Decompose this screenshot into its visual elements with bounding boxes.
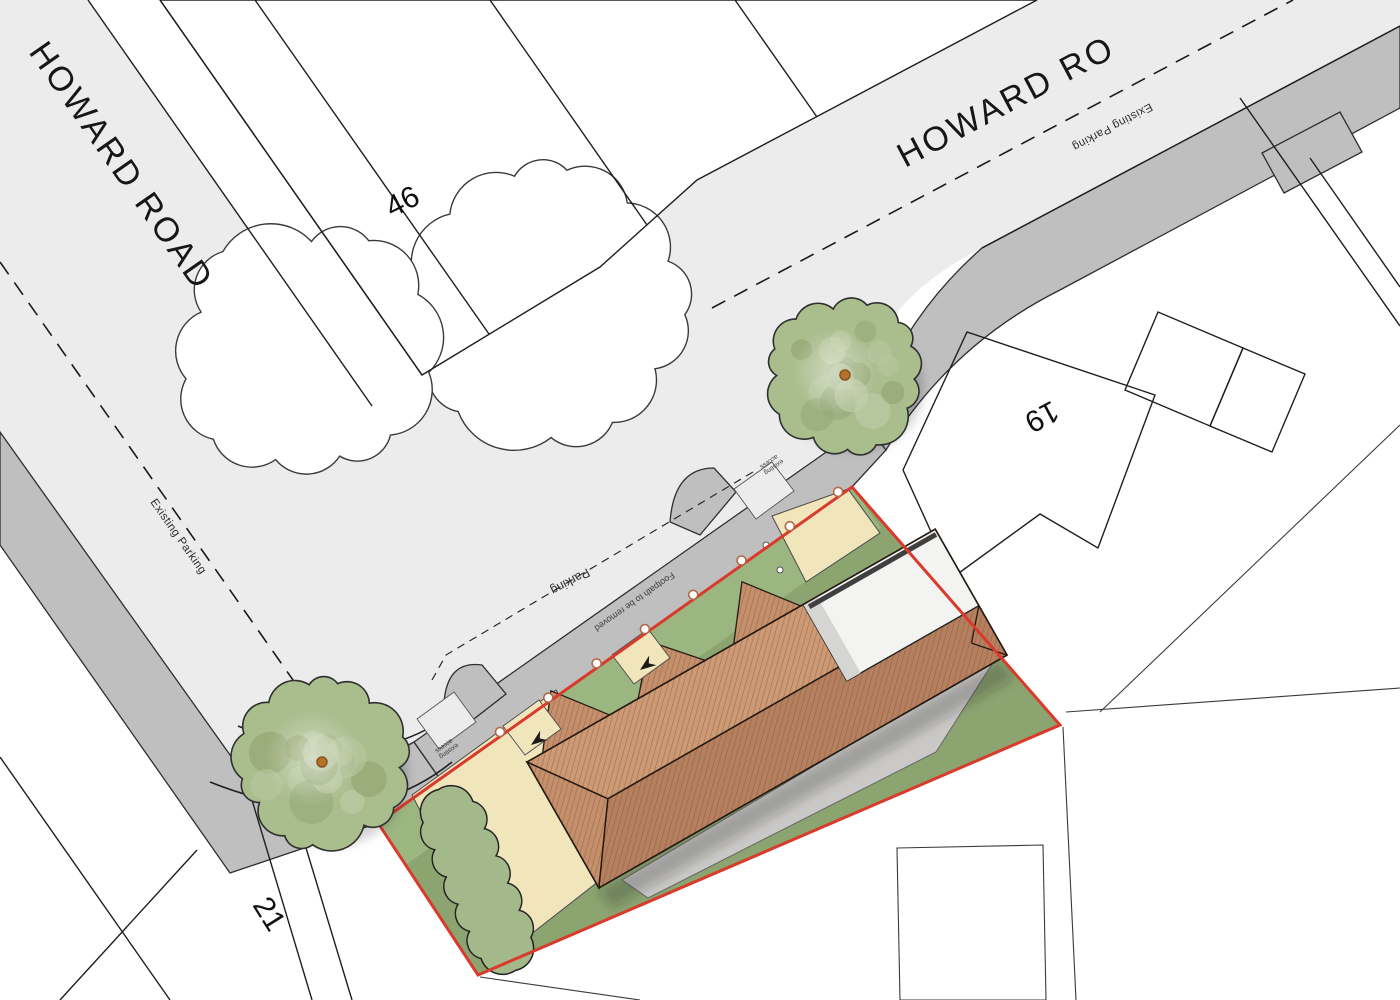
tree <box>768 298 924 455</box>
house-19-garage-b <box>1210 348 1305 452</box>
bollard-marker <box>834 487 843 496</box>
tree-trunk-marker <box>317 757 327 767</box>
bollard-marker <box>737 556 746 565</box>
site-plan-page: HOWARD ROAD HOWARD RO 46 19 21 Existing … <box>0 0 1400 1000</box>
bollard-marker <box>496 728 505 737</box>
bollard-marker <box>640 625 649 634</box>
site-plan-drawing: HOWARD ROAD HOWARD RO 46 19 21 Existing … <box>0 0 1400 1000</box>
shed-outline <box>897 845 1046 1000</box>
bollard-marker <box>592 659 601 668</box>
plot-number-21: 21 <box>246 891 292 937</box>
house-19-garage-a <box>1125 312 1243 426</box>
tree-trunk-marker <box>840 370 850 380</box>
bollard-marker <box>785 522 794 531</box>
bollard-marker <box>689 590 698 599</box>
plot-number-19: 19 <box>1019 394 1064 439</box>
bollard-marker <box>544 693 553 702</box>
post-marker-2 <box>777 567 783 573</box>
